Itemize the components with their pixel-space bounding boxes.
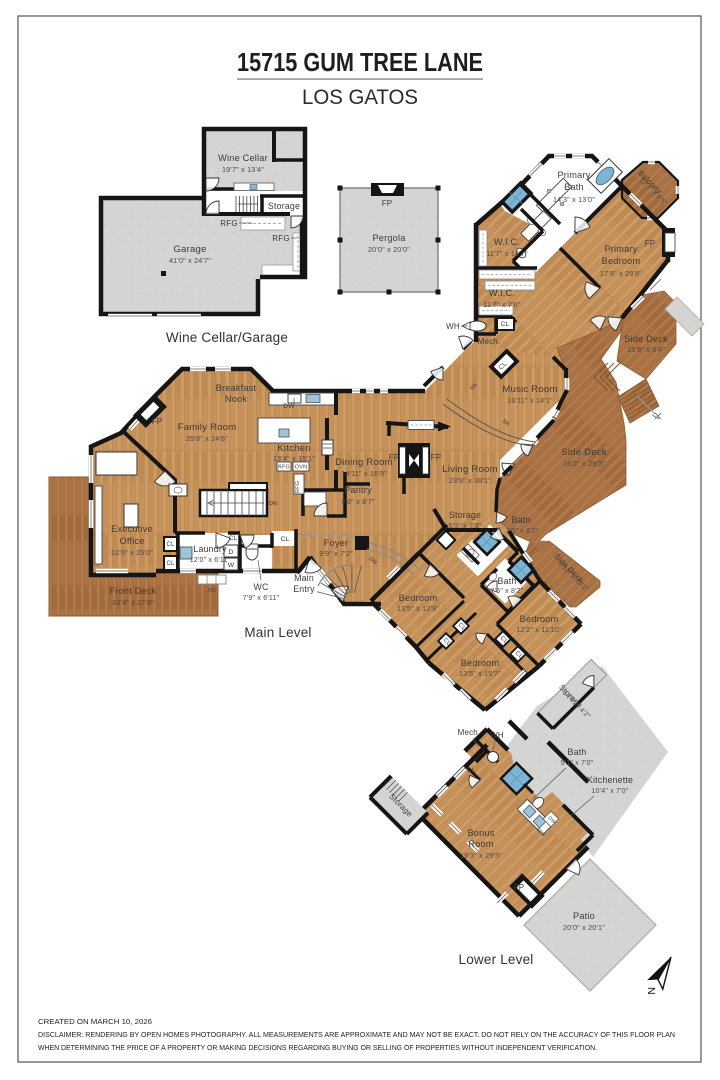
svg-text:Main Level: Main Level bbox=[244, 625, 311, 640]
svg-text:OVN: OVN bbox=[295, 465, 308, 471]
svg-text:12'6" x 25'0": 12'6" x 25'0" bbox=[111, 548, 153, 557]
svg-text:Main: Main bbox=[294, 573, 314, 583]
svg-text:Pergola: Pergola bbox=[372, 233, 406, 243]
svg-text:Side Deck: Side Deck bbox=[561, 447, 607, 458]
svg-text:CL: CL bbox=[281, 536, 290, 543]
svg-text:DN: DN bbox=[269, 501, 277, 507]
svg-text:Room: Room bbox=[468, 839, 493, 849]
svg-text:RFG: RFG bbox=[272, 234, 290, 243]
svg-text:5'1" x 7'0": 5'1" x 7'0" bbox=[561, 760, 594, 767]
svg-text:FP: FP bbox=[389, 453, 400, 462]
svg-text:Entry: Entry bbox=[293, 584, 315, 594]
svg-text:Laundry: Laundry bbox=[193, 544, 227, 554]
svg-text:13'5" x 12'9": 13'5" x 12'9" bbox=[397, 604, 439, 613]
svg-text:20'0" x 20'1": 20'0" x 20'1" bbox=[563, 923, 605, 932]
svg-text:WC: WC bbox=[253, 582, 269, 592]
svg-text:Kitchenette: Kitchenette bbox=[587, 775, 633, 785]
svg-text:FP: FP bbox=[152, 417, 163, 426]
svg-text:CREATED ON MARCH 10, 2026: CREATED ON MARCH 10, 2026 bbox=[38, 1017, 152, 1026]
svg-text:Bedroom: Bedroom bbox=[520, 614, 559, 624]
svg-text:16'11" x 14'1": 16'11" x 14'1" bbox=[507, 396, 553, 405]
svg-text:RFG: RFG bbox=[278, 465, 290, 471]
svg-text:RFG: RFG bbox=[295, 481, 301, 493]
svg-text:13'5" x 15'7": 13'5" x 15'7" bbox=[459, 669, 501, 678]
svg-text:7'5" x 6'2": 7'5" x 6'2" bbox=[506, 528, 539, 535]
svg-text:Family Room: Family Room bbox=[178, 422, 237, 433]
svg-text:Bath: Bath bbox=[498, 576, 517, 586]
svg-text:Primary: Primary bbox=[557, 170, 590, 180]
svg-text:11'7" x 14'7": 11'7" x 14'7" bbox=[486, 249, 528, 258]
svg-text:Pantry: Pantry bbox=[344, 485, 372, 495]
svg-text:D: D bbox=[229, 549, 234, 556]
svg-text:LOS GATOS: LOS GATOS bbox=[302, 85, 418, 109]
svg-text:FP: FP bbox=[431, 453, 442, 462]
svg-text:CL: CL bbox=[467, 767, 476, 774]
svg-text:Mech.: Mech. bbox=[478, 337, 501, 346]
svg-text:7'9" x 6'11": 7'9" x 6'11" bbox=[243, 595, 280, 602]
svg-text:Kitchen: Kitchen bbox=[277, 443, 310, 454]
svg-text:RFG: RFG bbox=[220, 219, 238, 228]
svg-text:20'0" x 20'0": 20'0" x 20'0" bbox=[368, 245, 410, 254]
svg-text:19'7" x 13'4": 19'7" x 13'4" bbox=[222, 165, 264, 174]
svg-text:CL: CL bbox=[501, 321, 510, 328]
svg-text:Executive: Executive bbox=[111, 524, 153, 534]
svg-text:N: N bbox=[645, 987, 657, 995]
svg-text:FP: FP bbox=[382, 199, 393, 208]
svg-text:DW: DW bbox=[283, 403, 295, 410]
svg-text:Bath: Bath bbox=[564, 182, 584, 192]
svg-text:Breakfast: Breakfast bbox=[216, 383, 257, 393]
svg-text:7'5" x 8'2": 7'5" x 8'2" bbox=[491, 588, 524, 595]
svg-text:W.I.C.: W.I.C. bbox=[494, 237, 520, 247]
svg-text:Patio: Patio bbox=[573, 911, 595, 921]
svg-text:Storage: Storage bbox=[449, 510, 481, 520]
svg-text:Side Deck: Side Deck bbox=[624, 334, 668, 344]
svg-text:DISCLAIMER: RENDERING BY OPEN: DISCLAIMER: RENDERING BY OPEN HOMES PHOT… bbox=[38, 1030, 675, 1039]
svg-text:WH: WH bbox=[446, 322, 460, 331]
svg-text:CL: CL bbox=[166, 542, 175, 548]
svg-text:Foyer: Foyer bbox=[324, 538, 349, 548]
svg-text:Garage: Garage bbox=[173, 244, 206, 255]
svg-text:17'6" x 29'8": 17'6" x 29'8" bbox=[600, 269, 642, 278]
svg-text:CL: CL bbox=[166, 561, 175, 567]
svg-text:10'4" x 7'0": 10'4" x 7'0" bbox=[592, 788, 629, 795]
svg-text:DN: DN bbox=[208, 588, 216, 594]
svg-text:WH: WH bbox=[490, 731, 504, 740]
svg-text:CL: CL bbox=[229, 535, 238, 542]
svg-text:Primary: Primary bbox=[604, 244, 637, 254]
svg-text:Living Room: Living Room bbox=[442, 464, 498, 475]
svg-text:23'9" x 38'1": 23'9" x 38'1" bbox=[449, 476, 491, 485]
svg-text:9'9" x 7'2": 9'9" x 7'2" bbox=[319, 549, 353, 558]
svg-text:WHEN DETERMINING THE PRICE OF: WHEN DETERMINING THE PRICE OF A PROPERTY… bbox=[38, 1043, 597, 1052]
svg-text:Mech.: Mech. bbox=[458, 728, 481, 737]
svg-text:Bedroom: Bedroom bbox=[399, 593, 438, 603]
svg-text:Bonus: Bonus bbox=[467, 828, 494, 838]
svg-text:15715 GUM TREE LANE: 15715 GUM TREE LANE bbox=[237, 49, 483, 77]
svg-text:Storage: Storage bbox=[268, 201, 300, 211]
svg-text:Bath: Bath bbox=[568, 747, 587, 757]
svg-text:14'11" x 16'9": 14'11" x 16'9" bbox=[341, 469, 387, 478]
svg-text:41'0" x 24'7": 41'0" x 24'7" bbox=[169, 256, 211, 265]
svg-text:Dining Room: Dining Room bbox=[335, 457, 393, 468]
svg-text:Bedroom: Bedroom bbox=[461, 658, 500, 668]
svg-text:11'7" x 7'6": 11'7" x 7'6" bbox=[483, 300, 521, 309]
svg-text:Nook: Nook bbox=[225, 394, 247, 404]
svg-text:19'3" x 29'3": 19'3" x 29'3" bbox=[460, 851, 502, 860]
svg-text:Office: Office bbox=[119, 536, 144, 546]
svg-text:25'8" x 24'6": 25'8" x 24'6" bbox=[186, 434, 228, 443]
svg-text:33'4" x 27'8": 33'4" x 27'8" bbox=[112, 598, 154, 607]
svg-text:W.I.C.: W.I.C. bbox=[489, 288, 515, 298]
svg-text:12'2" x 11'10": 12'2" x 11'10" bbox=[516, 625, 562, 634]
svg-text:9'6" x 8'7": 9'6" x 8'7" bbox=[341, 497, 375, 506]
svg-text:Bedroom: Bedroom bbox=[602, 256, 641, 266]
svg-text:Music Room: Music Room bbox=[502, 384, 557, 395]
svg-text:5'3" x 7'3": 5'3" x 7'3" bbox=[449, 523, 482, 530]
svg-text:Wine Cellar: Wine Cellar bbox=[218, 153, 268, 163]
svg-text:Lower Level: Lower Level bbox=[459, 952, 534, 967]
svg-text:12'0" x 6'11": 12'0" x 6'11" bbox=[190, 557, 231, 564]
svg-text:15'8" x 9'4": 15'8" x 9'4" bbox=[627, 345, 665, 354]
svg-text:Front Deck: Front Deck bbox=[110, 586, 157, 596]
svg-text:14'3" x 13'0": 14'3" x 13'0" bbox=[553, 195, 595, 204]
svg-text:18'2" x 29'3": 18'2" x 29'3" bbox=[563, 459, 605, 468]
svg-text:Bath: Bath bbox=[512, 515, 531, 525]
svg-text:FP: FP bbox=[645, 239, 656, 248]
svg-text:FP: FP bbox=[514, 883, 525, 892]
svg-text:Wine Cellar/Garage: Wine Cellar/Garage bbox=[166, 330, 288, 345]
